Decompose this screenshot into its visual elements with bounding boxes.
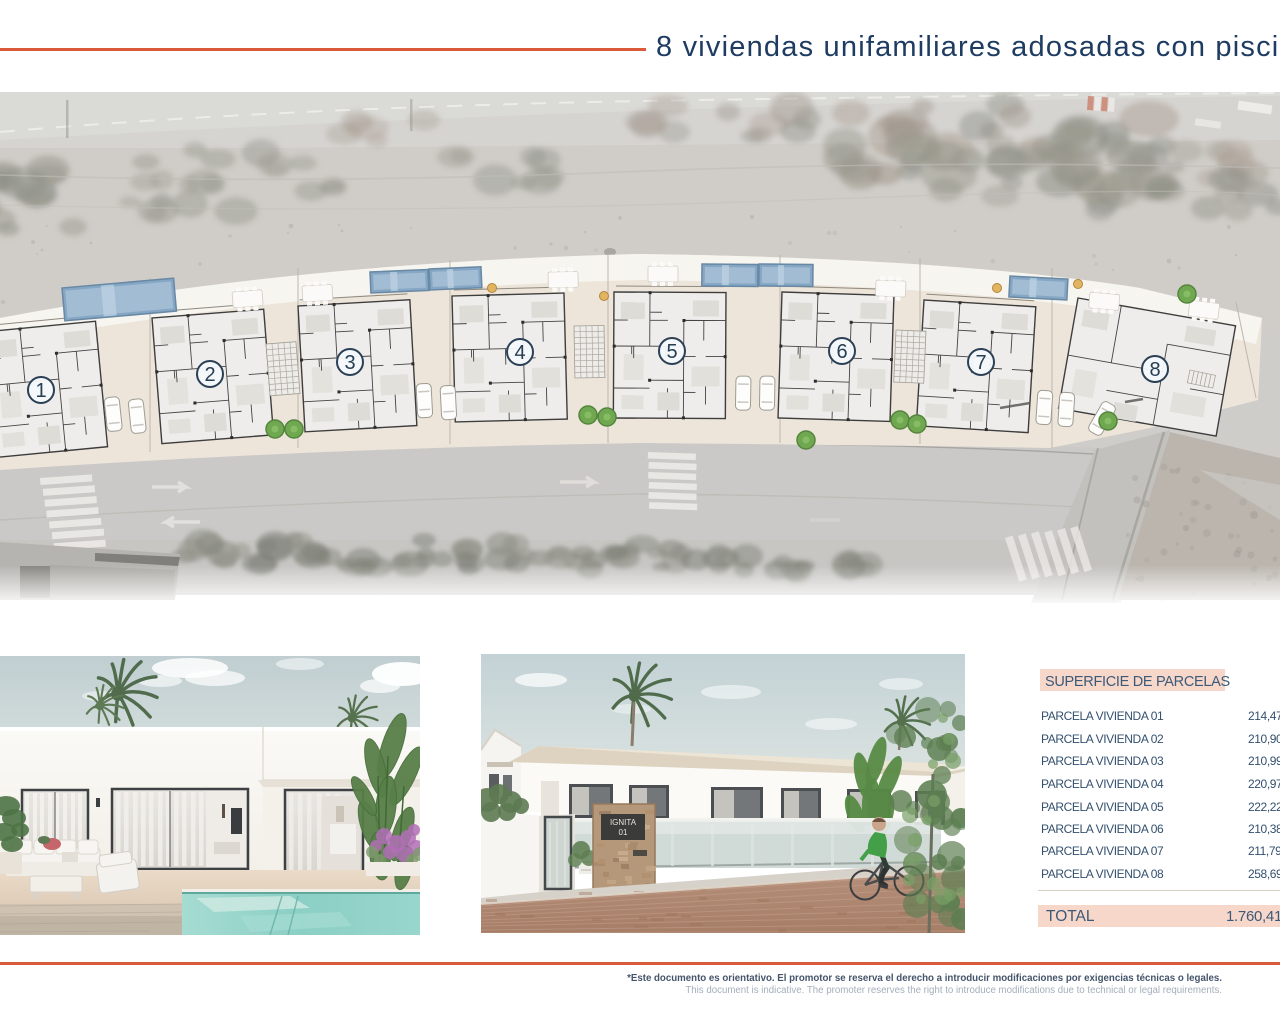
svg-text:7: 7 xyxy=(975,352,986,374)
svg-text:6: 6 xyxy=(836,341,847,363)
svg-text:1: 1 xyxy=(35,380,46,402)
svg-text:IGNITA: IGNITA xyxy=(610,818,637,827)
svg-text:5: 5 xyxy=(666,341,677,363)
svg-text:3: 3 xyxy=(344,352,355,374)
svg-text:4: 4 xyxy=(514,342,525,364)
svg-text:2: 2 xyxy=(204,364,215,386)
svg-text:01: 01 xyxy=(619,828,628,837)
svg-text:8: 8 xyxy=(1149,359,1160,381)
